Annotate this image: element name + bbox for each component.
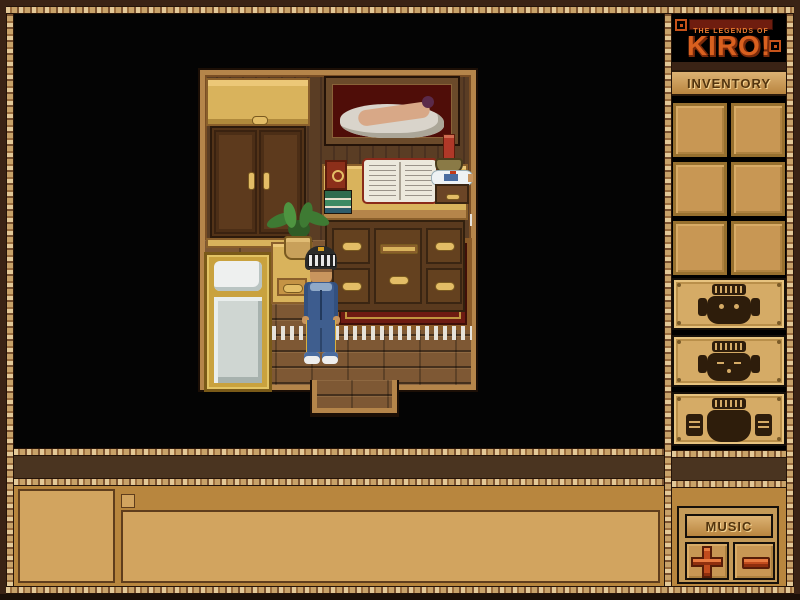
drawer-nameplate <box>380 244 418 254</box>
logo-title: KIRO! <box>672 29 786 62</box>
open-book-seam <box>399 162 401 200</box>
tiki-mask-asleep-icon <box>686 341 772 385</box>
drawer <box>426 228 462 264</box>
red-book[interactable] <box>325 160 347 190</box>
wardrobe-handle-right <box>263 172 270 190</box>
sidebar-rope-upper <box>672 450 786 458</box>
bed-pillow <box>214 261 262 291</box>
helmet-chip <box>318 247 324 251</box>
game-window: THE LEGENDS OF KIRO! INVENTORY <box>0 0 800 600</box>
small-wooden-box[interactable] <box>435 184 469 204</box>
action-button-mask-hands[interactable] <box>672 392 786 446</box>
red-book-emblem <box>332 170 344 182</box>
tiki-mask-hands-icon <box>686 398 772 444</box>
music-increase-button[interactable] <box>685 542 729 580</box>
inventory-slot[interactable] <box>731 221 785 275</box>
player-helmet <box>305 246 337 270</box>
inventory-slot[interactable] <box>673 103 727 157</box>
minus-icon <box>742 557 770 569</box>
rope-border-left <box>6 14 14 586</box>
rope-divider-sidebar <box>664 14 672 586</box>
separator-band <box>14 456 664 478</box>
bed[interactable] <box>204 252 272 392</box>
bed-blanket <box>214 297 262 383</box>
drawer <box>426 268 462 304</box>
music-decrease-button[interactable] <box>733 542 775 580</box>
open-book-lines-right <box>405 165 432 197</box>
action-button-mask-asleep[interactable] <box>672 335 786 387</box>
plus-icon <box>696 546 718 578</box>
inventory-banner: INVENTORY <box>672 70 786 96</box>
inventory-slot[interactable] <box>673 221 727 275</box>
rope-above-chat <box>14 478 664 486</box>
dresser-body <box>325 220 465 312</box>
action-button-mask-awake[interactable] <box>672 278 786 330</box>
player-shoe-right <box>322 352 338 364</box>
sidebar-rope-lower <box>672 480 786 488</box>
painting-figure-hair <box>422 96 434 108</box>
logo-separator <box>672 62 786 70</box>
music-area: MUSIC <box>672 488 786 586</box>
inventory-slot[interactable] <box>673 162 727 216</box>
music-label-box: MUSIC <box>685 514 773 538</box>
rope-under-viewport <box>14 448 664 456</box>
open-book-lines-left <box>369 165 396 197</box>
logo: THE LEGENDS OF KIRO! <box>672 14 786 62</box>
wardrobe-canopy-knob <box>252 116 268 125</box>
sidebar: THE LEGENDS OF KIRO! INVENTORY <box>672 14 786 586</box>
player-pants <box>306 320 336 352</box>
frame-right <box>794 0 800 600</box>
desk-with-drawers[interactable] <box>322 150 468 312</box>
message-panel <box>14 486 664 586</box>
open-book[interactable] <box>362 158 438 204</box>
nude-painting[interactable] <box>326 78 458 144</box>
music-panel: MUSIC <box>677 506 779 584</box>
chat-log[interactable] <box>121 510 660 583</box>
bottle-ship <box>444 174 458 181</box>
frame-bottom <box>0 594 800 600</box>
chat-indicator[interactable] <box>121 494 135 508</box>
tiki-mask-awake-icon <box>686 284 772 328</box>
wardrobe-canopy <box>206 78 310 126</box>
wardrobe-handle-left <box>248 172 255 190</box>
rope-border-right <box>786 14 794 586</box>
bottle-flag <box>450 171 456 174</box>
player-face <box>310 269 332 283</box>
inventory-label: INVENTORY <box>687 76 771 91</box>
bottle-cork <box>468 174 473 182</box>
doorway[interactable] <box>312 380 397 413</box>
music-label: MUSIC <box>706 519 753 534</box>
sidebar-separator-band <box>672 458 786 480</box>
player-character[interactable] <box>303 246 339 376</box>
game-viewport[interactable] <box>14 14 664 448</box>
rope-border-top <box>6 6 794 14</box>
jacket-zip <box>320 290 322 320</box>
inventory-slot[interactable] <box>731 162 785 216</box>
helmet-stripes <box>308 254 336 267</box>
inventory-slot[interactable] <box>731 103 785 157</box>
drawer-center <box>374 228 422 304</box>
player-shoe-left <box>304 352 320 364</box>
portrait-frame <box>18 489 115 583</box>
rope-border-bottom <box>6 586 794 594</box>
small-box-handle <box>446 194 460 200</box>
